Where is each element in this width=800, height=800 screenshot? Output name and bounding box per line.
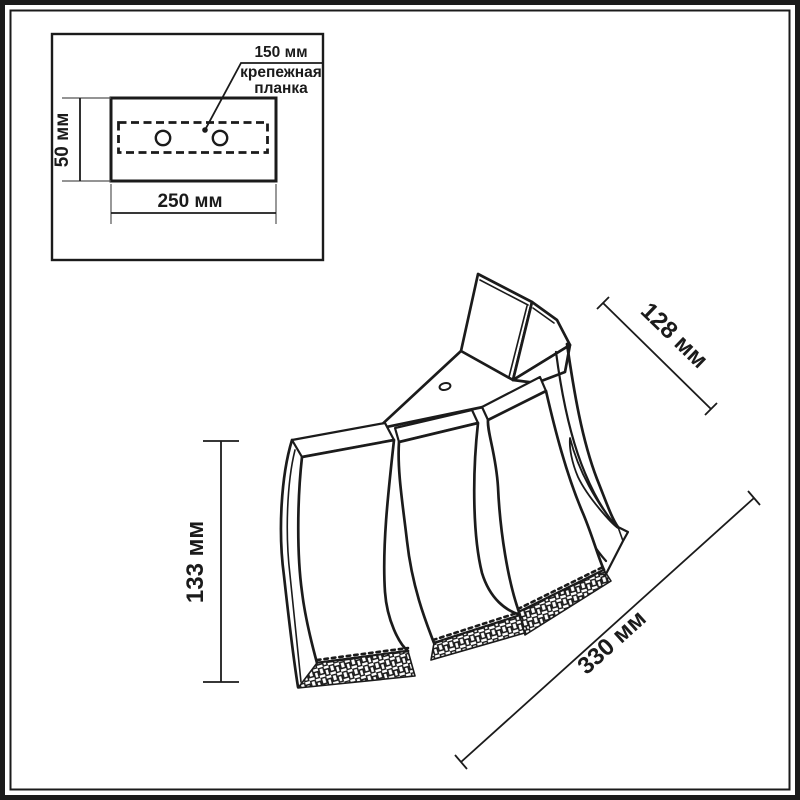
bracket-label-line1: крепежная bbox=[240, 64, 322, 81]
panel-right bbox=[482, 377, 611, 635]
plate-hole bbox=[439, 382, 451, 391]
technical-drawing-svg: 150 мм крепежная планка 50 мм 250 мм bbox=[0, 0, 800, 800]
lamp-dim-330-label: 330 мм bbox=[572, 605, 651, 680]
panel-left bbox=[281, 423, 415, 688]
bracket-label-line2: планка bbox=[254, 80, 308, 97]
inset-dim-50-label: 50 мм bbox=[52, 113, 73, 168]
lamp-dim-128-label: 128 мм bbox=[635, 297, 713, 374]
leader-dot bbox=[202, 127, 208, 133]
sconce-drawing bbox=[281, 274, 628, 688]
technical-drawing-page: 150 мм крепежная планка 50 мм 250 мм bbox=[0, 0, 800, 800]
dimension-128: 128 мм bbox=[597, 297, 717, 415]
inset-dim-250-label: 250 мм bbox=[157, 191, 222, 212]
lamp-dim-133-label: 133 мм bbox=[182, 521, 209, 603]
wall-plate-rect bbox=[111, 98, 276, 181]
inset-dim-150-label: 150 мм bbox=[254, 44, 307, 61]
dimension-133: 133 мм bbox=[182, 441, 239, 682]
mounting-plate-inset: 150 мм крепежная планка 50 мм 250 мм bbox=[52, 34, 323, 260]
